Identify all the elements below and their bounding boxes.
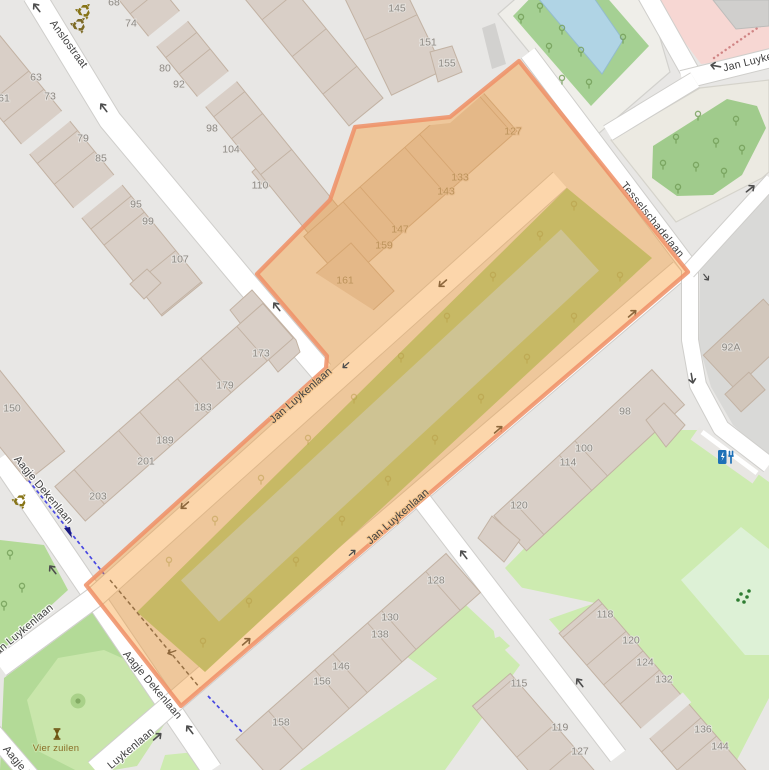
svg-text:63: 63 xyxy=(30,72,42,84)
svg-text:79: 79 xyxy=(77,133,89,145)
svg-text:158: 158 xyxy=(272,717,290,729)
svg-text:100: 100 xyxy=(575,443,593,455)
svg-text:114: 114 xyxy=(560,457,577,469)
svg-text:104: 104 xyxy=(222,144,240,156)
svg-text:138: 138 xyxy=(371,629,389,641)
svg-text:132: 132 xyxy=(655,674,673,686)
svg-text:61: 61 xyxy=(0,93,10,105)
svg-text:150: 150 xyxy=(3,403,21,415)
svg-text:120: 120 xyxy=(622,635,640,647)
svg-text:124: 124 xyxy=(636,657,654,669)
svg-text:99: 99 xyxy=(142,216,154,228)
svg-text:146: 146 xyxy=(332,661,350,673)
svg-text:203: 203 xyxy=(89,491,107,503)
svg-text:73: 73 xyxy=(44,91,56,103)
svg-text:98: 98 xyxy=(619,406,631,418)
svg-text:128: 128 xyxy=(427,575,445,587)
svg-text:120: 120 xyxy=(510,500,528,512)
svg-text:115: 115 xyxy=(511,678,528,690)
svg-text:85: 85 xyxy=(95,153,107,165)
svg-text:92A: 92A xyxy=(722,342,741,354)
svg-text:92: 92 xyxy=(173,79,185,91)
svg-text:189: 189 xyxy=(156,435,174,447)
svg-text:98: 98 xyxy=(206,123,218,135)
svg-text:179: 179 xyxy=(216,380,234,392)
svg-text:119: 119 xyxy=(552,722,569,734)
svg-text:136: 136 xyxy=(694,724,712,736)
svg-text:Vier zuilen: Vier zuilen xyxy=(33,743,79,754)
svg-text:144: 144 xyxy=(711,741,729,753)
svg-text:156: 156 xyxy=(313,676,331,688)
svg-text:110: 110 xyxy=(252,180,269,192)
svg-text:155: 155 xyxy=(438,58,456,70)
svg-text:80: 80 xyxy=(159,63,171,75)
svg-text:130: 130 xyxy=(381,612,399,624)
svg-text:107: 107 xyxy=(171,254,189,266)
svg-text:95: 95 xyxy=(130,199,142,211)
svg-text:68: 68 xyxy=(108,0,120,9)
svg-text:118: 118 xyxy=(597,609,614,621)
svg-text:183: 183 xyxy=(194,402,212,414)
svg-text:173: 173 xyxy=(252,348,270,360)
svg-text:145: 145 xyxy=(388,3,406,15)
svg-text:127: 127 xyxy=(571,746,589,758)
svg-text:201: 201 xyxy=(137,456,155,468)
svg-text:74: 74 xyxy=(125,18,137,30)
svg-text:151: 151 xyxy=(419,37,437,49)
